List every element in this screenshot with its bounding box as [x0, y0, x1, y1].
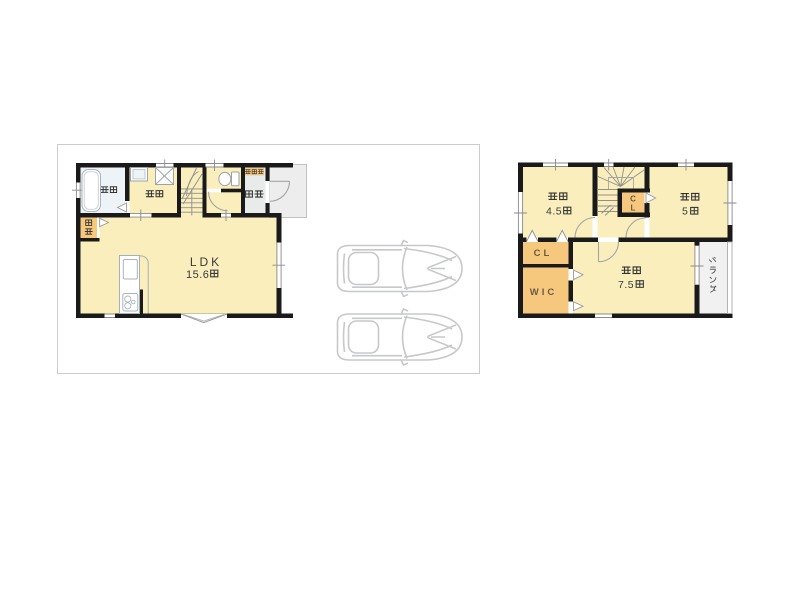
svg-text:4.5: 4.5	[546, 205, 562, 217]
svg-text:WIC: WIC	[530, 287, 557, 298]
svg-text:5: 5	[682, 206, 688, 218]
svg-text:7.5: 7.5	[618, 279, 634, 291]
svg-text:15.6: 15.6	[186, 269, 209, 281]
svg-text:L: L	[631, 204, 636, 213]
svg-text:C: C	[630, 195, 636, 204]
svg-text:CL: CL	[534, 248, 553, 259]
svg-text:LDK: LDK	[190, 255, 222, 269]
